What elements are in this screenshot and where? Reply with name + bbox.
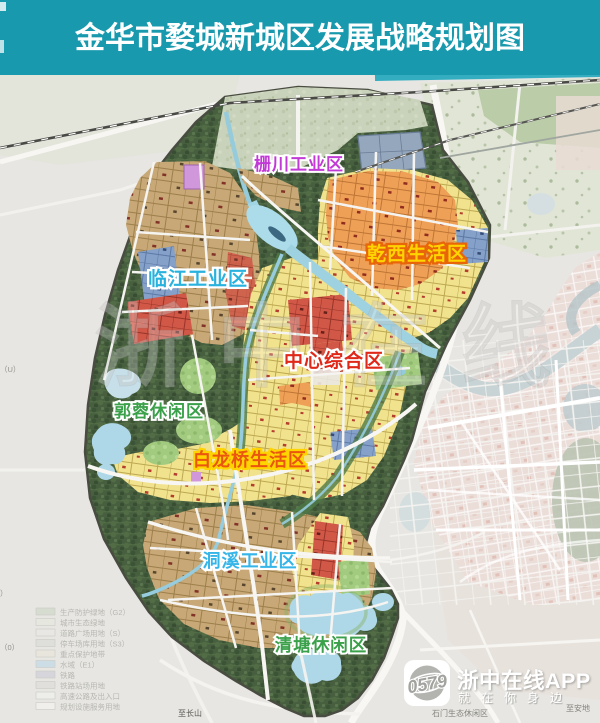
svg-text:（0）: （0）	[0, 643, 19, 652]
svg-text:石门生态休闲区: 石门生态休闲区	[432, 708, 488, 718]
svg-text:金华市婺城新城区发展战略规划图: 金华市婺城新城区发展战略规划图	[74, 21, 525, 55]
svg-text:栅川工业区: 栅川工业区	[254, 154, 344, 174]
svg-text:停车场库用地（S3）: 停车场库用地（S3）	[60, 639, 129, 649]
svg-text:）: ）	[0, 589, 8, 598]
svg-text:生产防护绿地（G2）: 生产防护绿地（G2）	[60, 607, 130, 617]
svg-text:浙中在线: 浙中在线	[95, 298, 583, 398]
svg-text:城市生态绿地: 城市生态绿地	[60, 618, 105, 628]
svg-text:临江工业区: 临江工业区	[148, 267, 248, 290]
svg-text:道路广场用地（S）: 道路广场用地（S）	[60, 628, 125, 638]
svg-text:清塘休闲区: 清塘休闲区	[275, 635, 368, 655]
svg-text:水域（E1）: 水域（E1）	[60, 660, 99, 670]
svg-text:洞溪工业区: 洞溪工业区	[203, 551, 298, 571]
svg-text:至长山: 至长山	[178, 708, 202, 718]
svg-text:铁路: 铁路	[60, 670, 75, 680]
svg-text:重点保护地带: 重点保护地带	[60, 649, 105, 659]
svg-text:规划设施服务用地: 规划设施服务用地	[60, 702, 120, 712]
svg-text:就在你身边: 就在你身边	[458, 690, 573, 705]
svg-text:（U）: （U）	[0, 365, 20, 374]
svg-text:高速公路及出入口: 高速公路及出入口	[60, 691, 120, 701]
svg-text:白龙桥生活区: 白龙桥生活区	[193, 449, 307, 470]
svg-text:中心综合区: 中心综合区	[284, 349, 384, 372]
svg-text:铁路站场用地: 铁路站场用地	[60, 681, 105, 691]
svg-text:郭蓉休闲区: 郭蓉休闲区	[114, 401, 204, 421]
svg-text:乾西生活区: 乾西生活区	[367, 242, 467, 265]
svg-text:浙中在线APP: 浙中在线APP	[457, 668, 591, 693]
